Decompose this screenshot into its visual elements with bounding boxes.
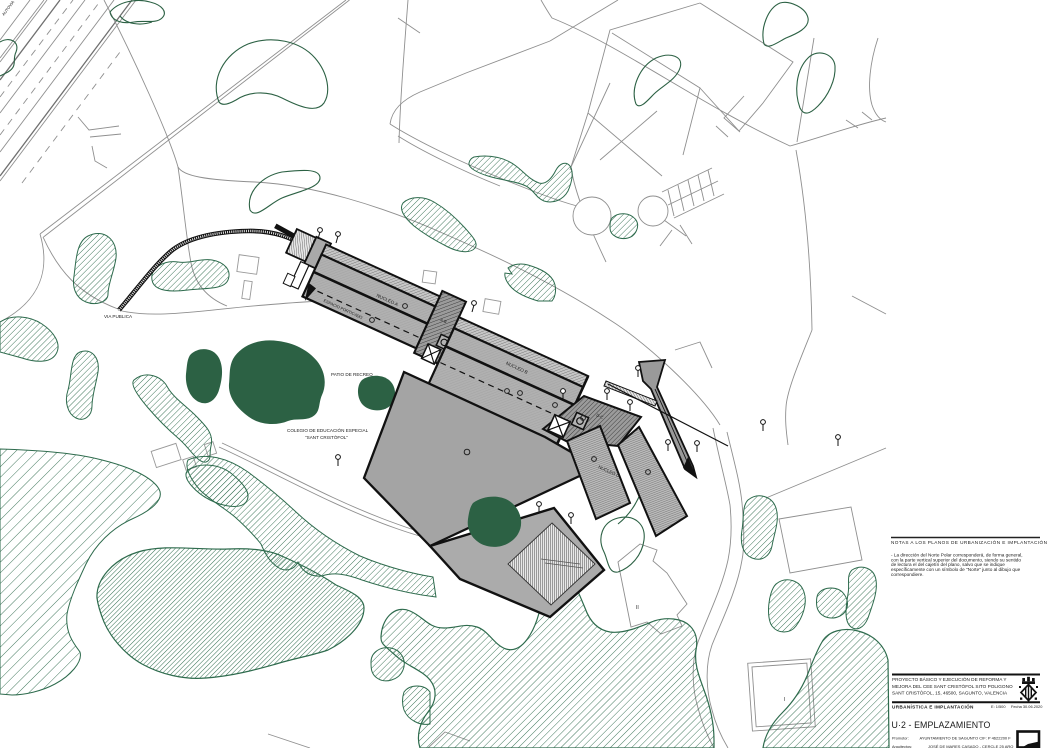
- svg-text:SANT CRISTÒFOL, 15, 46500, SAG: SANT CRISTÒFOL, 15, 46500, SAGUNTO, VALE…: [892, 690, 1008, 696]
- svg-text:PROYECTO BÁSICO Y EJECUCIÓN DE: PROYECTO BÁSICO Y EJECUCIÓN DE REFORMA Y: [892, 676, 1007, 682]
- svg-text:Fecha 30.06.2020: Fecha 30.06.2020: [1011, 704, 1043, 709]
- svg-text:URBANÍSTICA E IMPLANTACIÓN: URBANÍSTICA E IMPLANTACIÓN: [892, 703, 974, 710]
- svg-text:VIA PUBLICA: VIA PUBLICA: [104, 314, 133, 319]
- svg-text:JOSÉ DE MARES CASADO - CERCLE: JOSÉ DE MARES CASADO - CERCLE 25 ARQ: [928, 744, 1013, 748]
- svg-text:PATIO DE RECREO: PATIO DE RECREO: [331, 372, 373, 377]
- svg-text:I: I: [784, 697, 785, 703]
- svg-text:NOTAS A LOS PLANOS DE URBANIZA: NOTAS A LOS PLANOS DE URBANIZACIÓN E IMP…: [891, 539, 1047, 545]
- svg-text:Promotor:: Promotor:: [892, 736, 909, 740]
- svg-text:MEJORA DEL CEE SANT CRISTÒFOL: MEJORA DEL CEE SANT CRISTÒFOL SITO POLIG…: [892, 683, 1013, 689]
- svg-text:"SANT CRISTÒFOL": "SANT CRISTÒFOL": [305, 434, 348, 440]
- svg-text:correspondiere.: correspondiere.: [891, 572, 924, 577]
- svg-text:E: 1/500: E: 1/500: [991, 704, 1006, 709]
- svg-text:U·2 - EMPLAZAMIENTO: U·2 - EMPLAZAMIENTO: [892, 720, 991, 730]
- svg-text:AYUNTAMIENTO DE SAGUNTO CIF: P: AYUNTAMIENTO DE SAGUNTO CIF: P 4622200 F: [920, 735, 1012, 740]
- svg-text:II: II: [636, 605, 639, 611]
- svg-text:COLEGIO DE EDUCACIÓN ESPECIAL: COLEGIO DE EDUCACIÓN ESPECIAL: [287, 427, 369, 433]
